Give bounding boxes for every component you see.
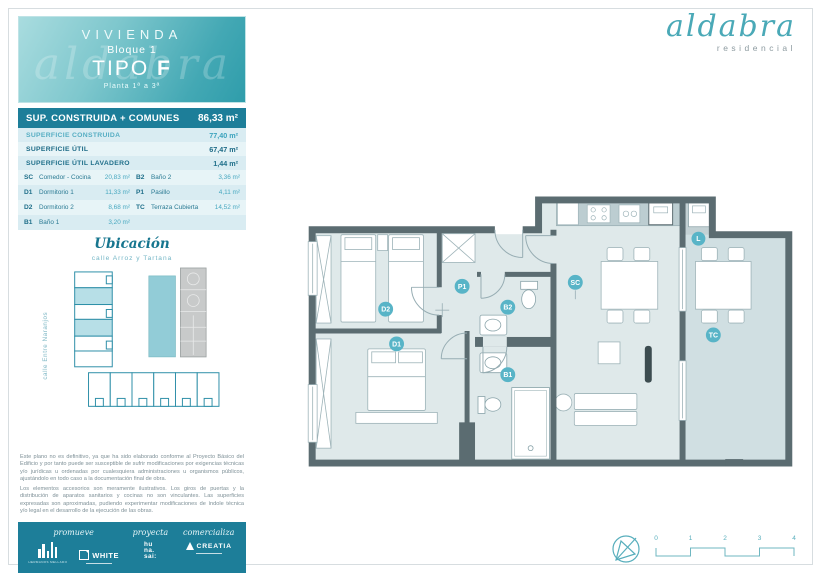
chair-icon (634, 310, 650, 323)
nightstand-icon (378, 235, 388, 251)
total-surface-label: SUP. CONSTRUIDA + COMUNES (26, 113, 179, 124)
surface-summary: SUPERFICIE CONSTRUIDA 77,40 m² SUPERFICI… (18, 128, 246, 170)
room-label-b2: B2 (503, 305, 512, 312)
kitchen-counter (556, 202, 681, 226)
street-label: calle Entre Naranjos (42, 312, 49, 380)
room-label-p1: P1 (458, 284, 467, 291)
chair-icon (701, 248, 717, 261)
terrace-table-icon (695, 261, 751, 309)
table-row: B1Baño 13,20 m² (18, 215, 246, 230)
side-table-icon (555, 394, 572, 411)
brochure-page: aldabra VIVIENDA Bloque 1 TIPO F Planta … (0, 0, 821, 573)
disclaimer-paragraph: Los elementos accesorios son meramente i… (20, 486, 244, 515)
summary-row: SUPERFICIE ÚTIL 67,47 m² (18, 142, 246, 156)
sofa-icon (574, 411, 637, 425)
scale-tick: 4 (792, 535, 796, 542)
triangle-icon (186, 542, 194, 550)
building-block (74, 272, 112, 367)
summary-row: SUPERFICIE ÚTIL LAVADERO 1,44 m² (18, 156, 246, 170)
wall-pier (459, 422, 475, 463)
brand-name: aldabra (666, 12, 796, 42)
site-map-drawing: calle Entre Naranjos (30, 266, 235, 434)
summary-row: SUPERFICIE CONSTRUIDA 77,40 m² (18, 128, 246, 142)
white-homes-logo: WHITE (79, 550, 119, 564)
role-label-comercializa: comercializa (183, 528, 234, 537)
buildings-icon (38, 542, 57, 558)
floor-plan: D2 D1 P1 B2 B1 SC L TC (300, 190, 797, 473)
hob-icon (587, 205, 610, 223)
chair-icon (728, 248, 744, 261)
sports-courts (180, 268, 206, 357)
creatia-logo: CREATIA (186, 542, 232, 554)
scale-bar: 0 1 2 3 4 (654, 535, 796, 556)
location-section: Ubicación calle Arroz y Tartana calle En… (18, 236, 246, 439)
room-label-b1: B1 (503, 372, 512, 379)
site-map: calle Entre Naranjos (18, 266, 246, 439)
location-subtitle: calle Arroz y Tartana (18, 255, 246, 262)
total-surface-value: 86,33 m² (198, 113, 238, 124)
entry-opening (495, 225, 523, 234)
double-bed-icon (368, 349, 426, 411)
legal-disclaimer: Este plano no es definitivo, ya que ha s… (18, 454, 246, 515)
room-label-tc: TC (709, 332, 718, 339)
toilet-icon (478, 397, 485, 414)
hermanos-mellado-logo: HERMANOS MELLADO (28, 542, 67, 564)
hunasai-logo: hu na. sai: (144, 542, 157, 560)
room-label-d1: D1 (392, 341, 401, 348)
scale-tick: 0 (654, 535, 658, 542)
role-label-promueve: promueve (53, 528, 94, 537)
sofa-icon (574, 394, 637, 410)
scale-tick: 3 (758, 535, 762, 542)
logo-subtext-strip (86, 563, 112, 565)
promoter-column: promueve HERMANOS MELLADO WHITE (24, 528, 123, 573)
shower-icon (512, 388, 550, 459)
tv-icon (645, 346, 652, 383)
entry-closet (442, 234, 475, 263)
chair-icon (701, 310, 717, 323)
info-sidebar: aldabra VIVIENDA Bloque 1 TIPO F Planta … (18, 16, 246, 573)
partners-footer: promueve HERMANOS MELLADO WHITE (18, 522, 246, 573)
room-label-sc: SC (570, 280, 580, 287)
total-surface-bar: SUP. CONSTRUIDA + COMUNES 86,33 m² (18, 108, 246, 128)
scale-tick: 1 (689, 535, 693, 542)
chair-icon (728, 310, 744, 323)
door-gap (483, 337, 507, 347)
table-row: D2Dormitorio 28,68 m² TCTerraza Cubierta… (18, 200, 246, 215)
room-label-d2: D2 (381, 307, 390, 314)
house-row (88, 373, 218, 407)
coffee-table-icon (598, 342, 620, 364)
pool (148, 276, 175, 357)
chair-icon (634, 248, 650, 261)
chair-icon (607, 310, 623, 323)
vanity-icon (480, 315, 507, 335)
bed-icon (389, 235, 424, 322)
unit-header-card: aldabra VIVIENDA Bloque 1 TIPO F Planta … (18, 16, 246, 103)
logo-subtext-strip (196, 553, 222, 555)
plan-legend: 0 1 2 3 4 (610, 528, 800, 570)
oven-icon (649, 203, 673, 225)
room-areas-table: SCComedor - Cocina20,83 m² B2Baño 23,36 … (18, 170, 246, 230)
location-title: Ubicación (18, 236, 246, 252)
bed-icon (341, 235, 376, 322)
dining-table-icon (601, 261, 658, 309)
chair-icon (607, 248, 623, 261)
brand-logo: aldabra residencial (666, 12, 796, 53)
scale-tick: 2 (723, 535, 727, 542)
role-label-proyecta: proyecta (133, 528, 168, 537)
toilet-icon (521, 281, 538, 289)
north-compass-icon (613, 536, 639, 562)
sales-column: comercializa CREATIA (177, 528, 240, 573)
bench-icon (356, 412, 437, 423)
architect-column: proyecta hu na. sai: (123, 528, 177, 573)
table-row: SCComedor - Cocina20,83 m² B2Baño 23,36 … (18, 170, 246, 185)
room-label-l: L (696, 236, 701, 243)
terrace-step (725, 459, 743, 466)
table-row: D1Dormitorio 111,33 m² P1Pasillo4,11 m² (18, 185, 246, 200)
disclaimer-paragraph: Este plano no es definitivo, ya que ha s… (20, 454, 244, 483)
square-icon (79, 550, 89, 560)
brand-tagline: residencial (666, 43, 796, 53)
watermark-script: aldabra (18, 39, 246, 90)
washing-machine-icon (689, 203, 710, 227)
